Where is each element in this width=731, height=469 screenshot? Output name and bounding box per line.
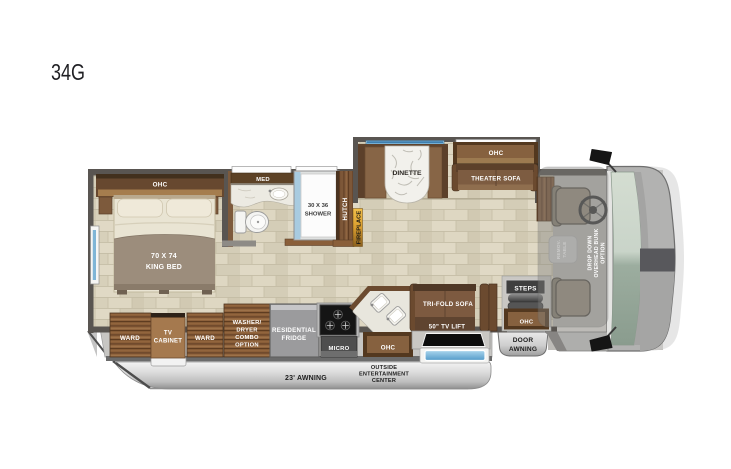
svg-text:MED: MED: [256, 177, 270, 183]
svg-text:CABINET: CABINET: [154, 339, 183, 345]
svg-text:34G: 34G: [51, 59, 85, 85]
svg-text:OUTSIDE: OUTSIDE: [371, 365, 397, 371]
svg-text:COMBO: COMBO: [235, 335, 259, 341]
svg-text:OHC: OHC: [520, 320, 534, 326]
svg-text:30 X 36: 30 X 36: [308, 203, 329, 209]
svg-text:HUTCH: HUTCH: [342, 197, 349, 220]
svg-text:OPTION: OPTION: [601, 242, 607, 263]
svg-text:OHC: OHC: [153, 182, 168, 189]
svg-text:DOOR: DOOR: [513, 337, 534, 344]
svg-text:TV: TV: [164, 331, 172, 337]
svg-text:OVERHEAD BUNK: OVERHEAD BUNK: [594, 228, 600, 277]
svg-text:23' AWNING: 23' AWNING: [285, 375, 327, 382]
svg-text:ENTERTAINMENT: ENTERTAINMENT: [359, 372, 409, 378]
svg-text:THEATER SOFA: THEATER SOFA: [471, 176, 521, 183]
svg-text:OPTION: OPTION: [235, 343, 259, 349]
svg-text:FRIDGE: FRIDGE: [282, 335, 307, 342]
svg-text:AWNING: AWNING: [509, 346, 537, 353]
svg-text:MICRO: MICRO: [329, 346, 350, 352]
svg-text:FIREPLACE: FIREPLACE: [357, 211, 363, 245]
svg-text:SHOWER: SHOWER: [305, 212, 332, 218]
svg-text:OHC: OHC: [489, 150, 504, 157]
svg-text:RESIDENTIAL: RESIDENTIAL: [272, 327, 316, 334]
svg-text:70 X 74: 70 X 74: [151, 253, 177, 260]
svg-text:STEPS: STEPS: [514, 286, 537, 293]
svg-text:WASHER/: WASHER/: [233, 320, 262, 326]
svg-text:WARD: WARD: [195, 335, 215, 342]
svg-text:50" TV LIFT: 50" TV LIFT: [429, 324, 465, 331]
svg-text:DINETTE: DINETTE: [392, 170, 422, 177]
svg-text:WARD: WARD: [120, 335, 140, 342]
svg-text:CENTER: CENTER: [372, 378, 396, 384]
svg-text:DROP DOWN: DROP DOWN: [588, 235, 594, 270]
svg-text:OHC: OHC: [381, 345, 396, 352]
svg-text:TRI-FOLD SOFA: TRI-FOLD SOFA: [423, 301, 473, 308]
svg-text:KING BED: KING BED: [146, 264, 182, 271]
svg-text:DRYER: DRYER: [236, 328, 258, 334]
